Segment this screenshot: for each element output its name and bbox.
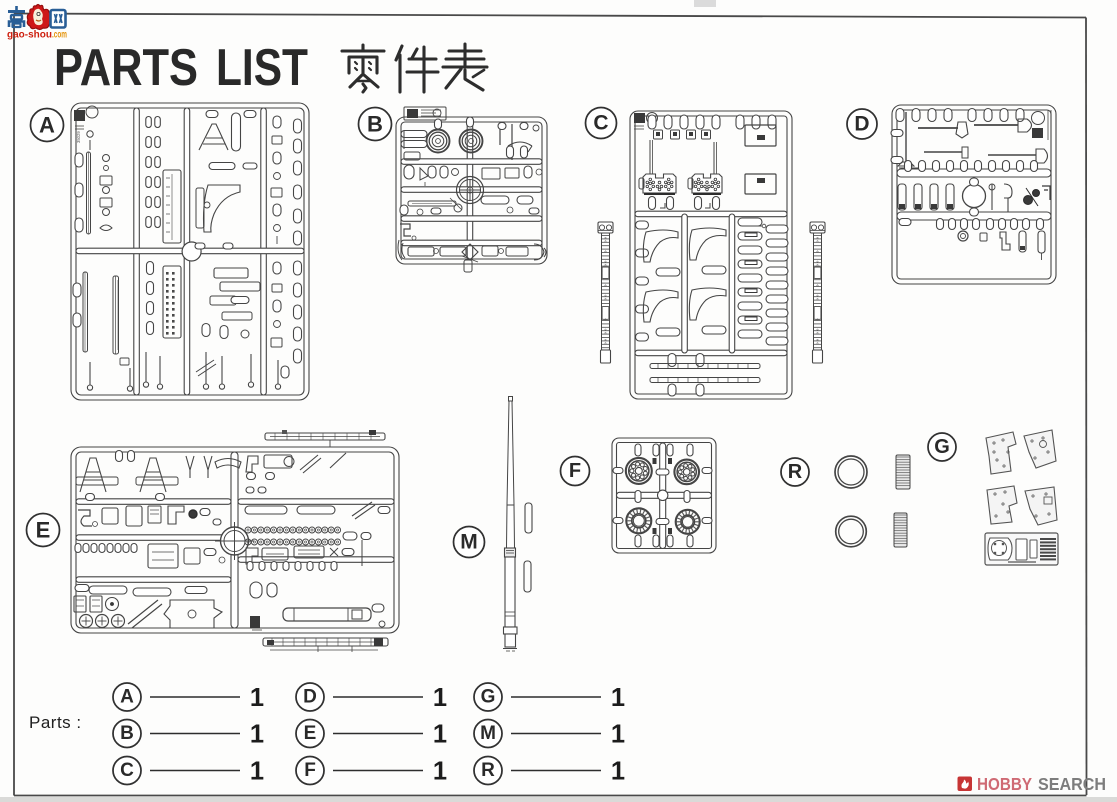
svg-text:M: M (460, 531, 478, 554)
svg-text:1: 1 (250, 720, 264, 748)
svg-text:Parts :: Parts : (29, 713, 82, 732)
svg-text:SEARCH: SEARCH (1038, 774, 1106, 794)
svg-text:A: A (39, 113, 55, 138)
svg-text:G: G (934, 436, 950, 458)
svg-text:PARTS: PARTS (54, 39, 198, 97)
svg-text:R: R (481, 760, 495, 781)
svg-text:R: R (788, 461, 803, 483)
svg-text:D: D (303, 687, 317, 708)
svg-text:F: F (569, 460, 581, 482)
svg-text:G: G (481, 687, 496, 708)
svg-text:D: D (854, 113, 869, 136)
svg-text:C: C (120, 760, 134, 781)
svg-text:1: 1 (611, 757, 625, 785)
svg-text:B: B (120, 723, 134, 744)
svg-text:A: A (120, 687, 134, 708)
svg-text:1: 1 (250, 684, 264, 712)
svg-text:F: F (304, 760, 316, 781)
svg-text:C: C (593, 112, 608, 135)
svg-text:LIST: LIST (216, 39, 308, 97)
svg-text:1: 1 (433, 757, 447, 785)
svg-text:B: B (367, 112, 383, 137)
svg-text:M: M (480, 723, 496, 744)
svg-text:E: E (36, 518, 51, 543)
svg-text:E: E (304, 723, 317, 744)
svg-text:gao-shou: gao-shou (7, 29, 52, 41)
svg-text:1: 1 (611, 684, 625, 712)
svg-text:1: 1 (433, 684, 447, 712)
svg-text:1: 1 (250, 757, 264, 785)
svg-text:35029: 35029 (76, 131, 81, 143)
svg-text:HOBBY: HOBBY (977, 774, 1032, 794)
svg-text:1: 1 (611, 720, 625, 748)
svg-text:1: 1 (433, 720, 447, 748)
